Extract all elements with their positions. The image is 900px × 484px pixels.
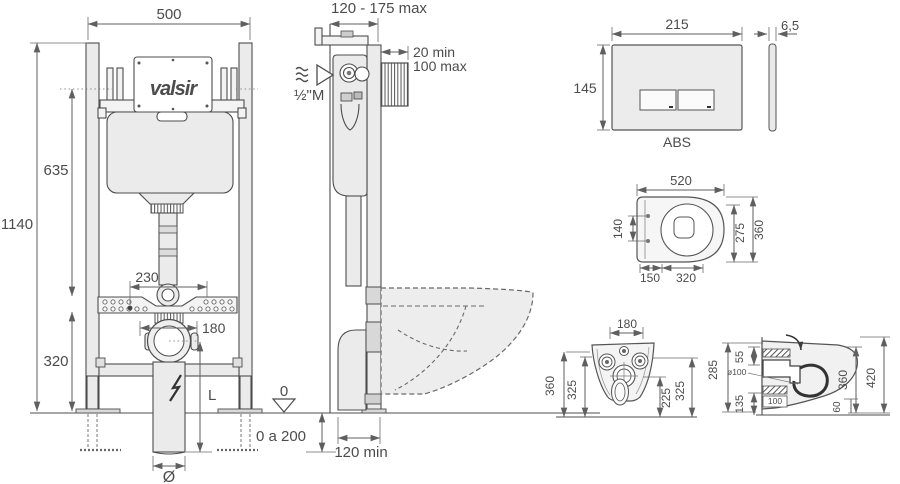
fixing-profile-top [763,349,790,357]
flush-pipe-side [346,196,361,286]
frame-profile [367,45,381,410]
cistern-body [107,112,233,193]
foot-plate-right [218,409,262,413]
front-span-label: 320 [676,271,696,285]
pan-fixing-rods [366,322,381,352]
plate-material-label: ABS [663,134,691,150]
height-dim-label: 1140 [1,216,33,233]
valve-block-1 [341,93,352,101]
flush-plate-view: ABS 215 145 6,5 [573,16,799,150]
flush-plate [612,45,742,130]
rear-fixing-label: 180 [617,317,637,331]
plate-thickness-label: 6,5 [781,18,799,33]
fixing-profile-bottom [763,386,787,394]
rear-span-label: 150 [640,271,660,285]
leg-left [87,376,98,409]
datum-label: 0 [280,383,288,400]
pipe-length-label: L [208,387,216,404]
total-depth-label: 420 [864,368,878,388]
pipe-diameter-label: Ø [163,469,175,484]
base-depth-label: 120 min [334,444,387,461]
leg-right [240,376,251,409]
water-connection-label: ½"M [294,87,324,104]
pan-connector [366,287,381,304]
fill-valve-center [347,71,352,76]
corrugated-conduit [381,63,408,106]
datum-triangle-icon [273,399,295,412]
drawing-canvas: valsir [0,0,900,484]
rear-inner-label: 325 [565,380,579,400]
inlet-elbow-inner [162,289,174,301]
frame-front-view: valsir [1,6,600,484]
technical-drawing: valsir [0,0,900,484]
rail-clamp-right [233,358,242,367]
floor-range-label: 0 a 200 [256,428,306,445]
ref-label: 100 [768,396,782,406]
brand-logo: valsir [150,78,198,100]
frame-rail-right [239,43,252,411]
bracket-clip [341,31,353,37]
fixing-hole-top [646,214,650,218]
conduit-max-label: 100 max [413,58,467,74]
rear-side-label: 325 [673,381,687,401]
fixing-hole-bottom [646,239,650,243]
reference-hole [128,306,133,311]
width-dim-label: 500 [156,6,181,23]
supply-offset-label: 230 [135,269,159,285]
support-block [338,330,366,410]
outlet-dia-label: ø100 [727,367,747,377]
top-gap-label: 55 [734,351,746,363]
lower-height-label: 320 [43,353,68,370]
cistern-taper [139,193,194,204]
side-height-label: 285 [706,360,720,380]
pipe-band-1 [159,226,177,233]
foot-plate-left [76,409,120,413]
plate-height-label: 145 [573,80,597,96]
flush-valve-top [355,67,369,81]
pan-rear-view: 180 360 325 225 325 [543,317,698,417]
tank-bracket-left [98,68,138,118]
pipe-band-2 [159,249,177,256]
depth-label: 120 - 175 max [331,0,427,17]
plate-width-label: 215 [665,16,689,32]
bottom-gap-label: 135 [734,395,746,413]
rail-clamp-left [96,358,105,367]
plate-tab [157,112,187,121]
frame-rail-left [86,43,99,411]
inner-depth-label: 275 [733,223,747,243]
pan-top-view: 520 140 275 360 150 320 [611,173,766,285]
rear-outlet-label: 225 [659,388,673,408]
rear-outer-label: 360 [543,376,557,396]
valve-block-2 [354,92,362,99]
pan-silhouette [381,288,533,394]
outlet-bend-side [365,394,381,404]
plate-profile [769,44,776,131]
drain-opening [674,217,694,238]
fixing-span-label: 140 [611,219,625,239]
rim-gap-label: 60 [832,401,843,413]
outlet-offset-label: 180 [202,320,226,336]
wall-bracket-hook [315,28,322,45]
pan-side-view: 55 285 ø100 135 100 360 420 60 [706,335,890,415]
water-supply-icon [296,65,333,85]
tank-height-label: 635 [43,162,68,179]
side-depth-label: 360 [836,370,850,390]
frame-side-view: 120 - 175 max 20 min 100 max ½"M 120 min [294,0,533,461]
flush-bend-ribs [151,204,183,213]
pan-width-label: 360 [752,220,766,240]
pan-length-label: 520 [670,173,692,188]
